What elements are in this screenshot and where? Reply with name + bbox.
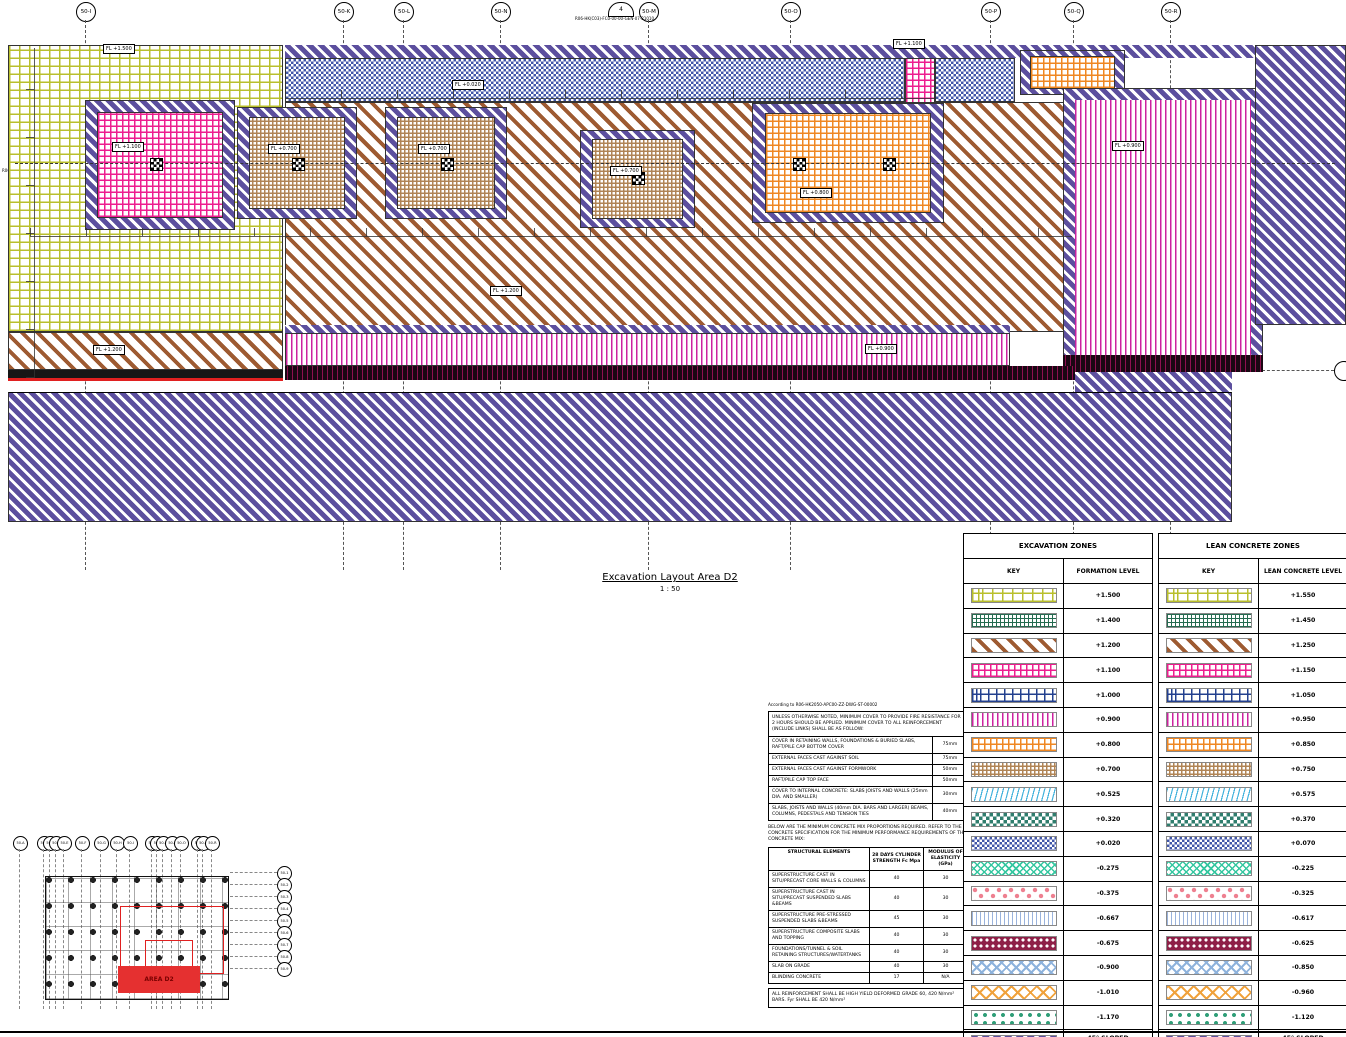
legend-level-value: -0.667 [1063, 906, 1152, 930]
keyplan-side-line-50-2 [230, 884, 277, 885]
legend-excavation-level-header: FORMATION LEVEL [1063, 559, 1152, 583]
legend-key-cell [964, 981, 1063, 1005]
legend-row: -0.667 [964, 906, 1152, 931]
legend-level-value: +0.850 [1258, 733, 1346, 757]
legend-level-value: -1.170 [1063, 1006, 1152, 1030]
legend-row: +1.050 [1159, 683, 1346, 708]
legend-swatch-octagon-blue [1166, 836, 1252, 851]
zone-fl-0800-top [1030, 56, 1115, 89]
legend-row: -0.225 [1159, 857, 1346, 882]
mix-header-modulus: MODULUS OF ELASTICITY (GPa) [923, 848, 967, 870]
mix-row-element: FOUNDATIONS/TUNNEL & SOIL RETAINING STRU… [769, 945, 869, 961]
mix-table-row: SUPERSTRUCTURE PRE-STRESSED SUSPENDED SL… [769, 911, 967, 928]
label-fl-1500: FL +1.500 [103, 44, 135, 54]
legend-key-cell [964, 758, 1063, 782]
legend-key-cell [964, 931, 1063, 955]
label-fl-1100-top: FL +1.100 [893, 39, 925, 49]
legend-level-value: +1.500 [1063, 584, 1152, 608]
cover-table: UNLESS OTHERWISE NOTED, MINIMUM COVER TO… [768, 711, 968, 821]
legend-swatch-grid-green [1166, 613, 1252, 628]
legend-level-value: -0.960 [1258, 981, 1346, 1005]
legend-lean-key-header: KEY [1159, 559, 1258, 583]
legend-swatch-diamond-red [971, 886, 1057, 901]
legend-swatch-cross-orange [1166, 985, 1252, 1000]
cover-row-value: 75mm [932, 737, 967, 753]
legend-swatch-tri-teal [1166, 861, 1252, 876]
keyplan-bubble-50-A: 50-A [13, 836, 28, 851]
legend-level-value: -0.617 [1258, 906, 1346, 930]
mix-row-modulus: 30 [923, 945, 967, 961]
legend-row: -0.375 [964, 882, 1152, 907]
label-fl-0800: FL +0.800 [800, 188, 832, 198]
legend-swatch-waves-cyan [1166, 787, 1252, 802]
legend-swatch-wave-lightblue [1166, 911, 1252, 926]
keyplan-side-line-50-9 [230, 968, 277, 969]
legend-key-cell [964, 782, 1063, 806]
legend-row: +0.700 [964, 758, 1152, 783]
legend-level-value: +1.550 [1258, 584, 1346, 608]
keyplan-side-bubble-50-9: 50-9 [277, 962, 292, 977]
legend-key-cell [1159, 832, 1258, 856]
keyplan-side-line-50-8 [230, 956, 277, 957]
legend-level-value: -0.325 [1258, 882, 1346, 906]
legend-row: -0.617 [1159, 906, 1346, 931]
legend-key-cell [1159, 609, 1258, 633]
legend-row: +0.950 [1159, 708, 1346, 733]
legend-key-cell [1159, 733, 1258, 757]
legend-swatch-checker-teal [1166, 812, 1252, 827]
drawing-title-block: Excavation Layout Area D2 1 : 50 [540, 572, 800, 593]
label-fl-0020: FL +0.020 [452, 80, 484, 90]
keyplan-side-line-50-3 [230, 896, 277, 897]
legend-key-cell [1159, 584, 1258, 608]
mix-table-header: STRUCTURAL ELEMENTS 28 DAYS CYLINDER STR… [769, 848, 967, 871]
keyplan-bubble-50-E: 50-E [57, 836, 72, 851]
keyplan-bubble-50-G: 50-G [94, 836, 109, 851]
legend-row: -1.010 [964, 981, 1152, 1006]
legend-row: -0.960 [1159, 981, 1346, 1006]
cover-row-value: 50mm [932, 776, 967, 786]
keyplan-bubble-50-O: 50-O [174, 836, 189, 851]
legend-swatch-octagon-blue [971, 836, 1057, 851]
legend-row: +1.100 [964, 658, 1152, 683]
drawing-sheet: 50-I50-K50-L50-N50-M50-O50-P50-Q50-R 4 R… [0, 0, 1346, 1037]
legend-level-value: -0.375 [1063, 882, 1152, 906]
legend-level-value: +0.320 [1063, 807, 1152, 831]
legend-swatch-waves-cyan [971, 787, 1057, 802]
legend-lean-header: KEY LEAN CONCRETE LEVEL [1159, 559, 1346, 584]
cover-table-intro: UNLESS OTHERWISE NOTED, MINIMUM COVER TO… [769, 712, 967, 737]
legend-key-cell [964, 609, 1063, 633]
legend-excavation-zones: EXCAVATION ZONES KEY FORMATION LEVEL +1.… [963, 533, 1153, 1037]
legend-level-value: -0.850 [1258, 956, 1346, 980]
legend-swatch-cross-lightblue [971, 960, 1057, 975]
excavation-plan: FL +1.500 FL +0.020 FL +1.100 FL +1.100 … [0, 0, 1346, 600]
zone-sloped-connector [1075, 372, 1232, 392]
legend-swatch-grid-green [971, 613, 1057, 628]
legend-level-value: -0.625 [1258, 931, 1346, 955]
pile-symbol-3 [441, 158, 454, 171]
legend-swatch-diamond-red [1166, 886, 1252, 901]
legend-row: +0.320 [964, 807, 1152, 832]
pile-symbol-1 [150, 158, 163, 171]
zone-fl-0900-right [1075, 100, 1251, 355]
notes-reference: According to R06-HK2050-APC00-ZZ-DWG-ST-… [768, 702, 968, 708]
mix-row-modulus: 30 [923, 871, 967, 887]
legend-swatch-weave-brown [1166, 762, 1252, 777]
legend-row: +0.750 [1159, 758, 1346, 783]
zone-dark-edge-mid [285, 366, 1075, 380]
cover-row-desc: RAFT/PILE CAP TOP FACE [769, 776, 932, 786]
legend-key-cell [964, 906, 1063, 930]
mix-row-modulus: 30 [923, 962, 967, 972]
mix-row-strength: 40 [869, 928, 923, 944]
legend-row: +1.450 [1159, 609, 1346, 634]
legend-swatch-diag-brown [971, 638, 1057, 653]
mix-row-modulus: 30 [923, 888, 967, 910]
legend-lean-zones: LEAN CONCRETE ZONES KEY LEAN CONCRETE LE… [1158, 533, 1346, 1037]
legend-row: +1.150 [1159, 658, 1346, 683]
mix-table: STRUCTURAL ELEMENTS 28 DAYS CYLINDER STR… [768, 847, 968, 984]
legend-key-cell [964, 857, 1063, 881]
legend-swatch-cross-orange [971, 985, 1057, 1000]
legend-level-value: +0.950 [1258, 708, 1346, 732]
zone-fl-0020-b [935, 58, 1015, 102]
drawing-scale: 1 : 50 [540, 585, 800, 593]
legend-key-cell [1159, 658, 1258, 682]
legend-level-value: +1.450 [1258, 609, 1346, 633]
zone-red-line-left [8, 378, 283, 381]
mix-row-element: BLINDING CONCRETE [769, 973, 869, 983]
keyplan-side-line-50-4 [230, 908, 277, 909]
legend-key-cell [964, 733, 1063, 757]
mix-table-row: SLAB ON GRADE4030 [769, 962, 967, 973]
mix-row-modulus: 30 [923, 911, 967, 927]
legend-key-cell [964, 658, 1063, 682]
cover-row-desc: EXTERNAL FACES CAST AGAINST FORMWORK [769, 765, 932, 775]
legend-level-value: +1.250 [1258, 634, 1346, 658]
cover-row-value: 75mm [932, 754, 967, 764]
legend-key-cell [964, 1006, 1063, 1030]
legend-level-value: -0.900 [1063, 956, 1152, 980]
legend-key-cell [964, 584, 1063, 608]
legend-level-value: +0.800 [1063, 733, 1152, 757]
cover-table-row: SLABS, JOISTS AND WALLS (40mm DIA. BARS … [769, 804, 967, 820]
zone-dark-edge-right [1063, 355, 1263, 372]
mix-row-element: SUPERSTRUCTURE PRE-STRESSED SUSPENDED SL… [769, 911, 869, 927]
legend-row: +1.250 [1159, 634, 1346, 659]
key-plan-area-d2: AREA D2 [118, 966, 200, 993]
legend-level-value: +1.400 [1063, 609, 1152, 633]
zone-sloped-right [1255, 45, 1346, 325]
mix-row-modulus: N/A [923, 973, 967, 983]
legend-row: -0.325 [1159, 882, 1346, 907]
legend-key-cell [964, 956, 1063, 980]
legend-level-value: +0.900 [1063, 708, 1152, 732]
cover-table-row: COVER IN RETAINING WALLS, FOUNDATIONS & … [769, 737, 967, 754]
mix-row-strength: 40 [869, 962, 923, 972]
mix-row-strength: 45 [869, 911, 923, 927]
legend-lean-level-header: LEAN CONCRETE LEVEL [1258, 559, 1346, 583]
mix-table-row: SUPERSTRUCTURE CAST IN SITU/PRECAST SUSP… [769, 888, 967, 911]
legend-key-cell [1159, 956, 1258, 980]
keyplan-bubble-50-R: 50-R [205, 836, 220, 851]
legend-level-value: +0.020 [1063, 832, 1152, 856]
mix-row-strength: 40 [869, 888, 923, 910]
legend-row: -1.170 [964, 1006, 1152, 1031]
dimension-chain-top [285, 90, 935, 99]
legend-row: +1.000 [964, 683, 1152, 708]
legend-level-value: +1.150 [1258, 658, 1346, 682]
legend-swatch-vlines-magenta [971, 712, 1057, 727]
legend-swatch-brick-yellow [971, 588, 1057, 603]
legend-swatch-honey-maroon [1166, 936, 1252, 951]
legend-row: +1.500 [964, 584, 1152, 609]
legend-swatch-brick-navy [971, 688, 1057, 703]
cover-row-desc: SLABS, JOISTS AND WALLS (40mm DIA. BARS … [769, 804, 932, 820]
legend-row: +0.800 [964, 733, 1152, 758]
legend-key-cell [1159, 882, 1258, 906]
legend-key-cell [1159, 981, 1258, 1005]
legend-key-cell [964, 634, 1063, 658]
reinforcement-note: ALL REINFORCEMENT SHALL BE HIGH YIELD DE… [768, 988, 968, 1008]
mix-row-strength: 40 [869, 871, 923, 887]
legend-row: -0.850 [1159, 956, 1346, 981]
legend-row: -0.275 [964, 857, 1152, 882]
cover-table-row: EXTERNAL FACES CAST AGAINST SOIL75mm [769, 754, 967, 765]
legend-key-cell [1159, 807, 1258, 831]
legend-level-value: +1.200 [1063, 634, 1152, 658]
mix-row-element: SUPERSTRUCTURE CAST IN SITU/PRECAST CORE… [769, 871, 869, 887]
legend-row: -0.675 [964, 931, 1152, 956]
sheet-border-bottom [0, 1031, 1346, 1033]
legend-excavation-header: KEY FORMATION LEVEL [964, 559, 1152, 584]
band-sloped-strip [285, 325, 1010, 333]
keyplan-side-line-50-1 [230, 872, 277, 873]
legend-row: +1.200 [964, 634, 1152, 659]
legend-row: -1.120 [1159, 1006, 1346, 1031]
cover-table-row: COVER TO INTERNAL CONCRETE: SLABS JOISTS… [769, 787, 967, 804]
legend-level-value: +0.575 [1258, 782, 1346, 806]
zone-sloped-bottom [8, 392, 1232, 522]
legend-row: -0.900 [964, 956, 1152, 981]
legend-level-value: +0.750 [1258, 758, 1346, 782]
label-fl-0900-band: FL +0.900 [865, 344, 897, 354]
label-fl-1100-cap: FL +1.100 [112, 142, 144, 152]
legend-row: +0.525 [964, 782, 1152, 807]
legend-level-value: +1.000 [1063, 683, 1152, 707]
legend-swatch-weave-brown [971, 762, 1057, 777]
legend-row: +0.850 [1159, 733, 1346, 758]
legend-level-value: +0.370 [1258, 807, 1346, 831]
mix-table-row: FOUNDATIONS/TUNNEL & SOIL RETAINING STRU… [769, 945, 967, 962]
mix-row-element: SUPERSTRUCTURE COMPOSITE SLABS AND TOPPI… [769, 928, 869, 944]
cover-table-row: RAFT/PILE CAP TOP FACE50mm [769, 776, 967, 787]
legend-row: +0.575 [1159, 782, 1346, 807]
legend-row: +0.070 [1159, 832, 1346, 857]
legend-level-value: -0.675 [1063, 931, 1152, 955]
legend-key-cell [1159, 758, 1258, 782]
mix-table-row: SUPERSTRUCTURE CAST IN SITU/PRECAST CORE… [769, 871, 967, 888]
cover-row-value: 40mm [932, 804, 967, 820]
legend-key-cell [1159, 708, 1258, 732]
cover-row-desc: EXTERNAL FACES CAST AGAINST SOIL [769, 754, 932, 764]
legend-key-cell [1159, 634, 1258, 658]
legend-level-value: +1.050 [1258, 683, 1346, 707]
label-fl-0900-right: FL +0.900 [1112, 141, 1144, 151]
notes-block: According to R06-HK2050-APC00-ZZ-DWG-ST-… [768, 702, 968, 1008]
legend-row: -0.625 [1159, 931, 1346, 956]
legend-swatch-squares-pink [971, 663, 1057, 678]
legend-key-cell [1159, 931, 1258, 955]
legend-row: +1.400 [964, 609, 1152, 634]
legend-swatch-vlines-magenta [1166, 712, 1252, 727]
legend-key-cell [964, 807, 1063, 831]
legend-key-cell [1159, 1006, 1258, 1030]
mix-intro-text: BELOW ARE THE MINIMUM CONCRETE MIX PROPO… [768, 825, 968, 843]
legend-swatch-honey-maroon [971, 936, 1057, 951]
legend-key-cell [1159, 782, 1258, 806]
legend-key-cell [1159, 857, 1258, 881]
legend-swatch-grid-orange [971, 737, 1057, 752]
legend-row: +0.900 [964, 708, 1152, 733]
legend-swatch-checker-teal [971, 812, 1057, 827]
legend-key-cell [964, 832, 1063, 856]
pile-symbol-5 [793, 158, 806, 171]
keyplan-bubble-50-I: 50-I [123, 836, 138, 851]
legend-swatch-nabla-green [1166, 1010, 1252, 1025]
legend-swatch-grid-orange [1166, 737, 1252, 752]
legend-key-cell [1159, 906, 1258, 930]
legend-lean-title: LEAN CONCRETE ZONES [1159, 534, 1346, 559]
dimension-chain-left [26, 48, 35, 378]
mix-row-element: SUPERSTRUCTURE CAST IN SITU/PRECAST SUSP… [769, 888, 869, 910]
legend-row: +1.550 [1159, 584, 1346, 609]
cover-row-desc: COVER TO INTERNAL CONCRETE: SLABS JOISTS… [769, 787, 932, 803]
legend-level-value: +1.100 [1063, 658, 1152, 682]
label-fl-0700-b: FL +0.700 [418, 144, 450, 154]
cover-row-value: 50mm [932, 765, 967, 775]
legend-excavation-key-header: KEY [964, 559, 1063, 583]
legend-excavation-title: EXCAVATION ZONES [964, 534, 1152, 559]
label-fl-1200: FL +1.200 [490, 286, 522, 296]
mix-table-row: SUPERSTRUCTURE COMPOSITE SLABS AND TOPPI… [769, 928, 967, 945]
legend-swatch-squares-pink [1166, 663, 1252, 678]
cover-row-desc: COVER IN RETAINING WALLS, FOUNDATIONS & … [769, 737, 932, 753]
legend-key-cell [964, 683, 1063, 707]
mix-row-modulus: 30 [923, 928, 967, 944]
key-plan: 50-A50-B50-C50-D50-E50-F50-G50-H50-I50-K… [5, 828, 320, 1028]
legend-level-value: -0.275 [1063, 857, 1152, 881]
zone-fl-0900-band [285, 333, 1010, 366]
drawing-title: Excavation Layout Area D2 [540, 572, 800, 583]
mix-row-element: SLAB ON GRADE [769, 962, 869, 972]
legend-key-cell [964, 708, 1063, 732]
legend-swatch-nabla-green [971, 1010, 1057, 1025]
mix-table-row: BLINDING CONCRETE17N/A [769, 973, 967, 983]
label-fl-1200-left: FL +1.200 [93, 345, 125, 355]
label-fl-0700-a: FL +0.700 [268, 144, 300, 154]
keyplan-side-line-50-7 [230, 944, 277, 945]
keyplan-line-50-A [19, 849, 20, 1009]
mix-header-elements: STRUCTURAL ELEMENTS [769, 848, 869, 870]
cover-table-row: EXTERNAL FACES CAST AGAINST FORMWORK50mm [769, 765, 967, 776]
legend-row: +0.020 [964, 832, 1152, 857]
legend-row: +0.370 [1159, 807, 1346, 832]
legend-swatch-brick-yellow [1166, 588, 1252, 603]
keyplan-side-line-50-5 [230, 920, 277, 921]
legend-key-cell [964, 882, 1063, 906]
mix-row-strength: 40 [869, 945, 923, 961]
label-fl-0700-c: FL +0.700 [610, 166, 642, 176]
dimension-chain-mid [30, 228, 1072, 237]
centerline-caps [15, 163, 1335, 164]
pile-symbol-6 [883, 158, 896, 171]
legend-level-value: -0.225 [1258, 857, 1346, 881]
mix-header-strength: 28 DAYS CYLINDER STRENGTH Fc Mpa [869, 848, 923, 870]
zone-black-strip-left [8, 370, 283, 378]
legend-swatch-cross-lightblue [1166, 960, 1252, 975]
pile-symbol-2 [292, 158, 305, 171]
legend-swatch-tri-teal [971, 861, 1057, 876]
mix-row-strength: 17 [869, 973, 923, 983]
legend-level-value: -1.010 [1063, 981, 1152, 1005]
legend-level-value: +0.525 [1063, 782, 1152, 806]
legend-swatch-brick-navy [1166, 688, 1252, 703]
zone-fl-1200-left [8, 332, 283, 370]
keyplan-line-50-B [43, 849, 44, 1009]
legend-key-cell [1159, 683, 1258, 707]
legend-level-value: -1.120 [1258, 1006, 1346, 1030]
legend-level-value: +0.070 [1258, 832, 1346, 856]
legend-swatch-diag-brown [1166, 638, 1252, 653]
legend-swatch-wave-lightblue [971, 911, 1057, 926]
keyplan-bubble-50-F: 50-F [75, 836, 90, 851]
keyplan-side-line-50-6 [230, 932, 277, 933]
key-plan-area-d2-label: AREA D2 [144, 976, 173, 983]
cover-row-value: 30mm [932, 787, 967, 803]
legend-level-value: +0.700 [1063, 758, 1152, 782]
